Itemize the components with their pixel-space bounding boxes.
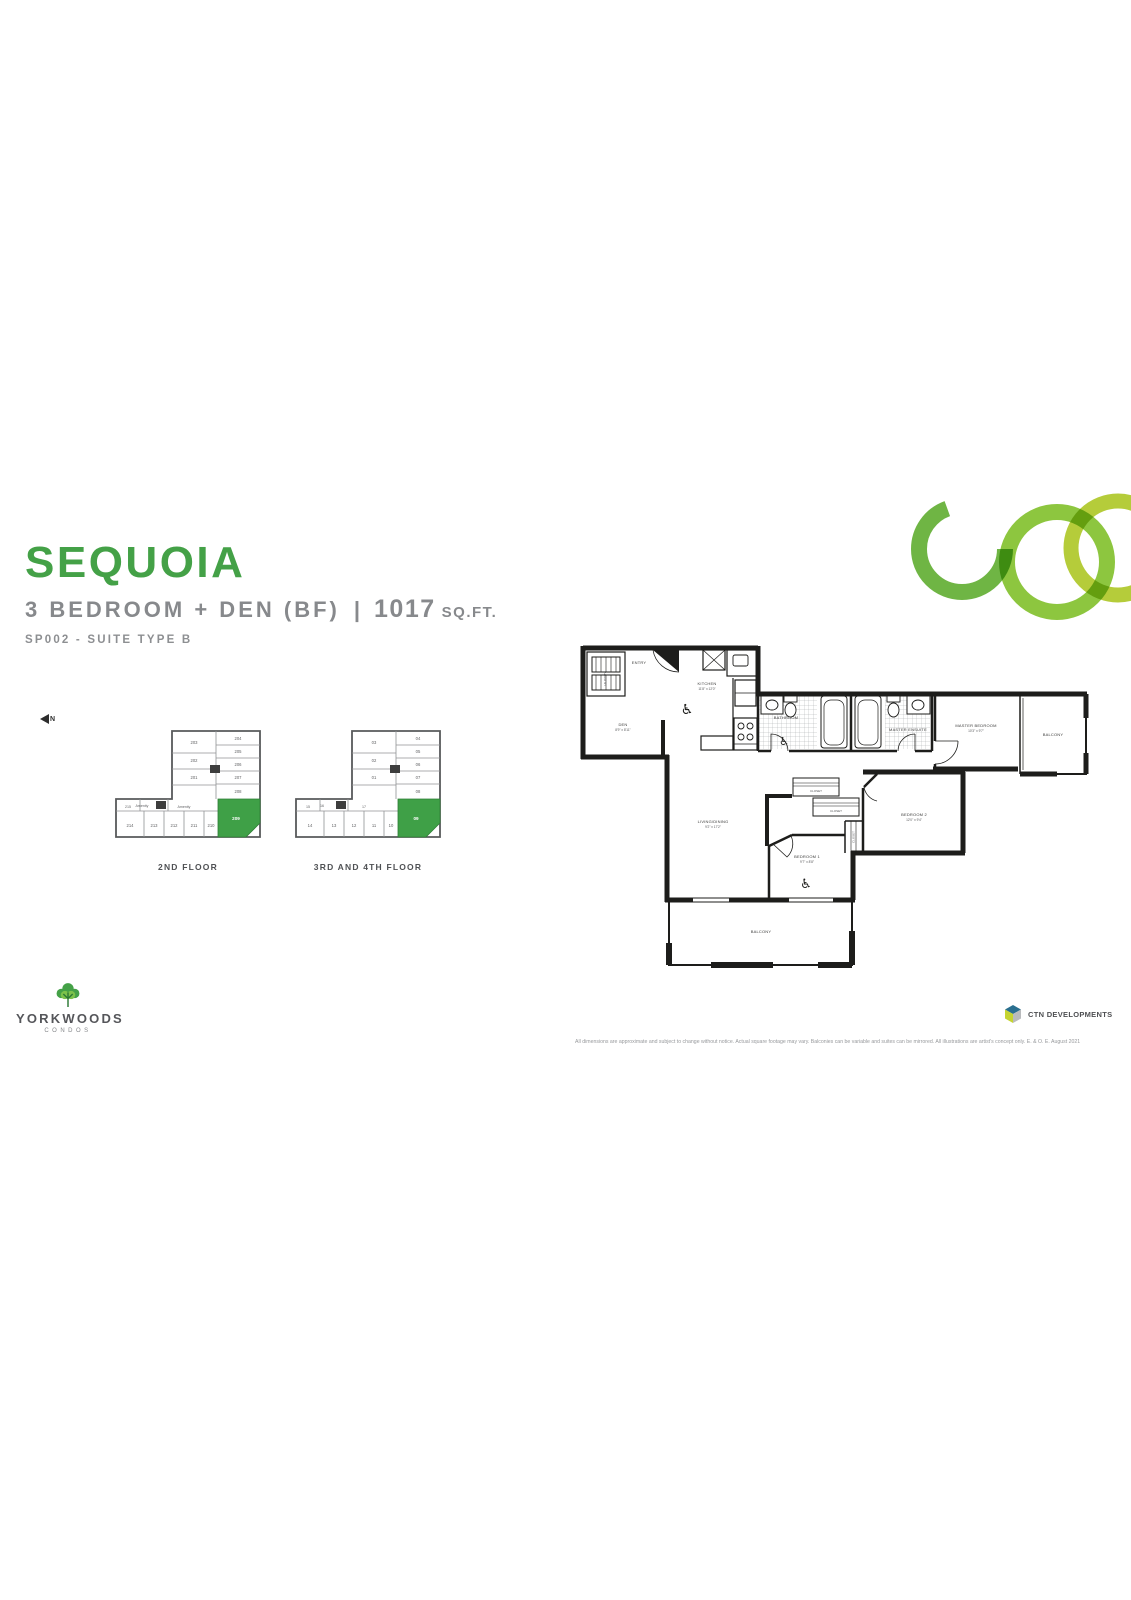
suite-header: SEQUOIA 3 BEDROOM + DEN (BF) | 1017 SQ.F… [25, 541, 497, 646]
room-dims-living-dining: 9'2" x 17'2" [705, 825, 721, 829]
suite-type-label: 3 BEDROOM + DEN (BF) [25, 597, 340, 623]
unit-label: 206 [235, 762, 243, 767]
unit-label: 212 [171, 823, 179, 828]
unit-label: 10 [389, 823, 394, 828]
room-label-entry: ENTRY [632, 660, 647, 665]
room-label-balcony-bottom: BALCONY [751, 929, 772, 934]
north-arrow-icon [40, 714, 49, 724]
unit-label: 13 [332, 823, 337, 828]
unit-label: 14 [308, 823, 313, 828]
tree-icon [54, 981, 82, 1008]
room-dims-kitchen: 11'8" x 12'0" [698, 687, 715, 691]
key-plan-2nd-floor-drawing: 203 202 201 204 205 206 207 208 214 213 … [112, 727, 264, 849]
ctn-logo: CTN DEVELOPMENTS [1002, 1003, 1112, 1025]
unit-label: 208 [235, 789, 243, 794]
key-plan-caption: 2ND FLOOR [112, 862, 264, 872]
room-dims-master-bedroom: 10'3" x 9'7" [968, 729, 984, 733]
room-label-closet-b: CLOSET [830, 809, 842, 813]
suite-area-unit: SQ.FT. [442, 604, 498, 621]
wheelchair-icon: ♿ [681, 702, 694, 718]
room-label-living-dining: LIVING/DINING [698, 819, 729, 824]
unit-label: 07 [416, 775, 421, 780]
key-plan-2nd-floor: 203 202 201 204 205 206 207 208 214 213 … [112, 727, 264, 872]
brochure-page: SEQUOIA 3 BEDROOM + DEN (BF) | 1017 SQ.F… [0, 0, 1131, 1600]
unit-label: 205 [235, 749, 243, 754]
unit-label: 215 [125, 805, 131, 809]
room-label-kitchen: KITCHEN [698, 681, 717, 686]
yorkwoods-tagline: CONDOS [16, 1028, 120, 1034]
suite-title: SEQUOIA [25, 541, 497, 585]
unit-label: 203 [191, 740, 199, 745]
room-label-balcony-right: BALCONY [1043, 732, 1064, 737]
room-label-master-ensuite: MASTER ENSUITE [889, 727, 927, 732]
stair-core [336, 801, 346, 809]
unit-label: 211 [191, 823, 198, 828]
room-label-bedroom-1: BEDROOM 1 [794, 854, 820, 859]
elevator-core [210, 765, 220, 773]
unit-label: 17 [362, 805, 366, 809]
ctn-name: CTN DEVELOPMENTS [1028, 1010, 1112, 1019]
unit-label: 16 [320, 804, 324, 808]
suite-area: 1017 SQ.FT. [374, 595, 497, 624]
key-plan-caption: 3RD AND 4TH FLOOR [292, 862, 444, 872]
unit-label: 06 [416, 762, 421, 767]
unit-label: 04 [416, 736, 421, 741]
suite-area-value: 1017 [374, 595, 436, 624]
stair-core [156, 801, 166, 809]
unit-label: 15 [306, 805, 310, 809]
room-dims-den: 8'9" x 8'11" [615, 728, 630, 732]
unit-label: 02 [372, 758, 377, 763]
yorkwoods-logo: YORKWOODS CONDOS [16, 981, 120, 1034]
room-dims-bedroom-1: 9'7" x 8'8" [800, 860, 814, 864]
unit-label: 12 [352, 823, 357, 828]
unit-label: 01 [372, 775, 377, 780]
key-plan-3rd-4th-floor-drawing: 03 02 01 04 05 06 07 08 14 13 12 11 10 1… [292, 727, 444, 849]
unit-label: 03 [372, 740, 377, 745]
unit-label: 11 [372, 823, 377, 828]
floor-plan-drawing: LAUNDRY [575, 638, 1095, 978]
suite-subtitle-row: 3 BEDROOM + DEN (BF) | 1017 SQ.FT. [25, 595, 497, 624]
room-label-laundry: LAUNDRY [603, 672, 607, 686]
room-dims-bedroom-2: 12'0" x 9'4" [906, 818, 922, 822]
room-label-closet-c: CLOSET [852, 831, 856, 843]
room-label-closet-a: CLOSET [810, 789, 822, 793]
elevator-core [390, 765, 400, 773]
unit-label: 08 [416, 789, 421, 794]
room-label-bathroom: BATHROOM [774, 715, 798, 720]
unit-label: Amenity [136, 804, 149, 808]
unit-label: 201 [191, 775, 199, 780]
unit-label: 214 [127, 823, 135, 828]
room-label-den: DEN [618, 722, 627, 727]
main-floor-plan: LAUNDRY [575, 638, 1095, 983]
key-plan-3rd-4th-floor: 03 02 01 04 05 06 07 08 14 13 12 11 10 1… [292, 727, 444, 872]
room-label-master-bedroom: MASTER BEDROOM [955, 723, 996, 728]
north-indicator: N [40, 714, 55, 724]
unit-label: 210 [208, 823, 216, 828]
highlighted-unit-label: 09 [413, 816, 419, 821]
rings-icon [895, 492, 1131, 624]
ctn-cube-icon [1002, 1003, 1024, 1025]
unit-label: 202 [191, 758, 199, 763]
wheelchair-icon: ♿ [800, 877, 812, 892]
unit-label: 204 [235, 736, 243, 741]
yorkwoods-name: YORKWOODS [16, 1011, 120, 1026]
entry-shelves [703, 650, 758, 676]
unit-label: 207 [235, 775, 243, 780]
unit-label: 05 [416, 749, 421, 754]
unit-label: 213 [151, 823, 159, 828]
wheelchair-icon: ♿ [779, 735, 789, 748]
north-label: N [50, 716, 55, 723]
highlighted-unit-label: 209 [232, 816, 240, 821]
room-label-bedroom-2: BEDROOM 2 [901, 812, 927, 817]
unit-label: Amenity [178, 805, 191, 809]
disclaimer-text: All dimensions are approximate and subje… [575, 1039, 1091, 1045]
closets [793, 778, 859, 853]
suite-code: SP002 - SUITE TYPE B [25, 634, 497, 646]
brand-rings-logo [895, 492, 1131, 624]
divider-bar: | [354, 597, 360, 623]
